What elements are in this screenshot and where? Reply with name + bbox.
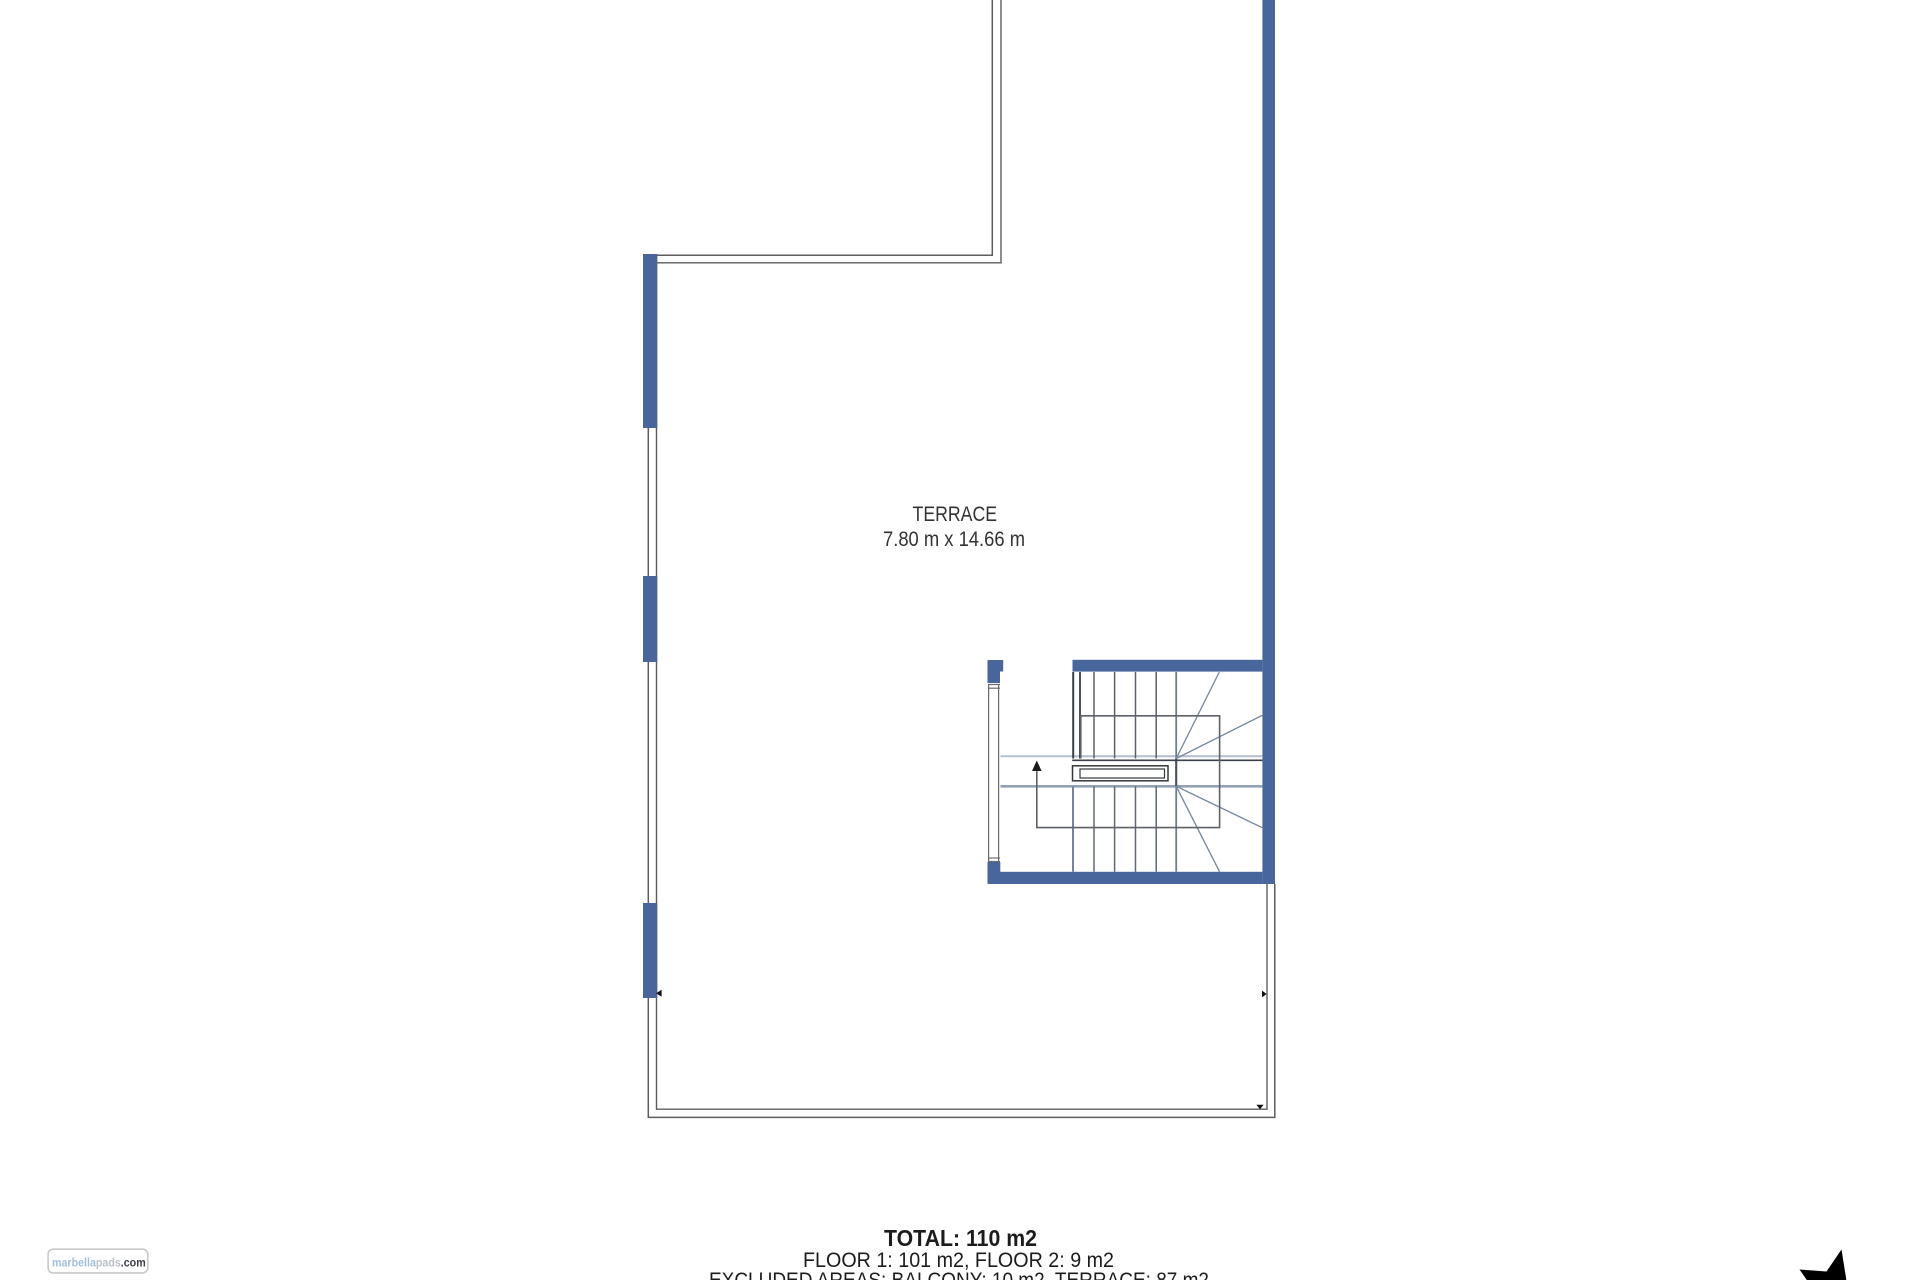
svg-text:TOTAL: 110 m2: TOTAL: 110 m2 bbox=[884, 1225, 1037, 1251]
svg-text:marbellapads.com: marbellapads.com bbox=[52, 1256, 146, 1270]
svg-text:TERRACE: TERRACE bbox=[913, 503, 998, 526]
svg-text:7.80 m x 14.66 m: 7.80 m x 14.66 m bbox=[883, 528, 1025, 551]
svg-text:EXCLUDED AREAS: BALCONY: 10 m2: EXCLUDED AREAS: BALCONY: 10 m2, TERRACE:… bbox=[709, 1269, 1209, 1280]
